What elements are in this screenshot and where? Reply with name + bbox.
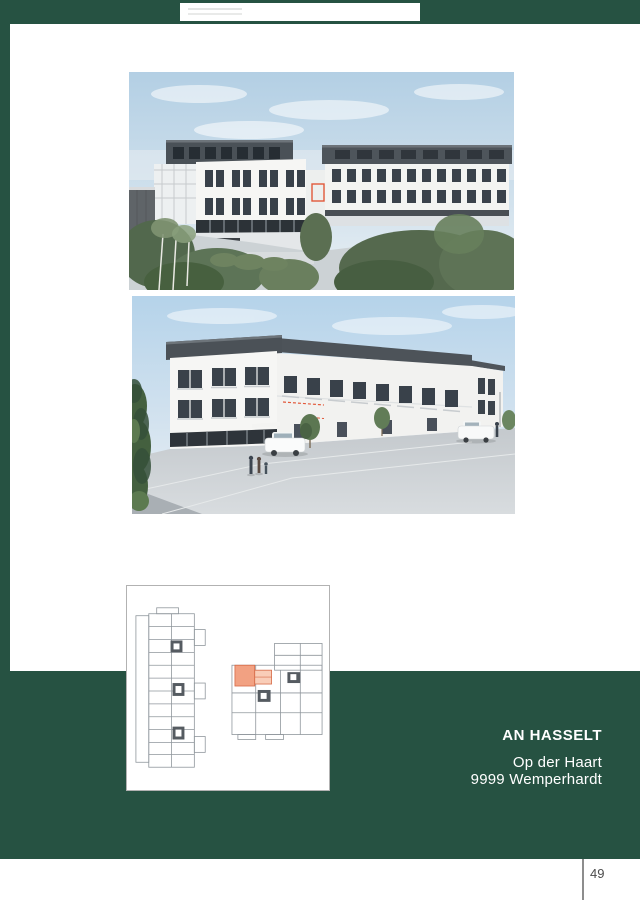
page-number: 49 [590,866,604,881]
project-street: Op der Haart [471,754,602,771]
logo-mark [188,8,242,10]
project-name: AN HASSELT [471,728,602,744]
floorplan-box [126,585,330,791]
top-brand-bar [0,0,640,24]
project-address-block: AN HASSELT Op der Haart 9999 Wemperhardt [471,728,602,788]
building-street-illustration [132,296,515,514]
rendering-photo-bottom [132,296,515,514]
highlighted-unit [235,665,255,686]
brochure-page: AN HASSELT Op der Haart 9999 Wemperhardt… [0,0,640,900]
left-brand-stripe [0,0,10,671]
project-city: 9999 Wemperhardt [471,771,602,788]
page-divider-line [582,859,584,900]
rendering-photo-top [129,72,514,290]
building-aerial-illustration [129,72,514,290]
logo-box [180,3,420,21]
floorplan-illustration [127,586,329,790]
